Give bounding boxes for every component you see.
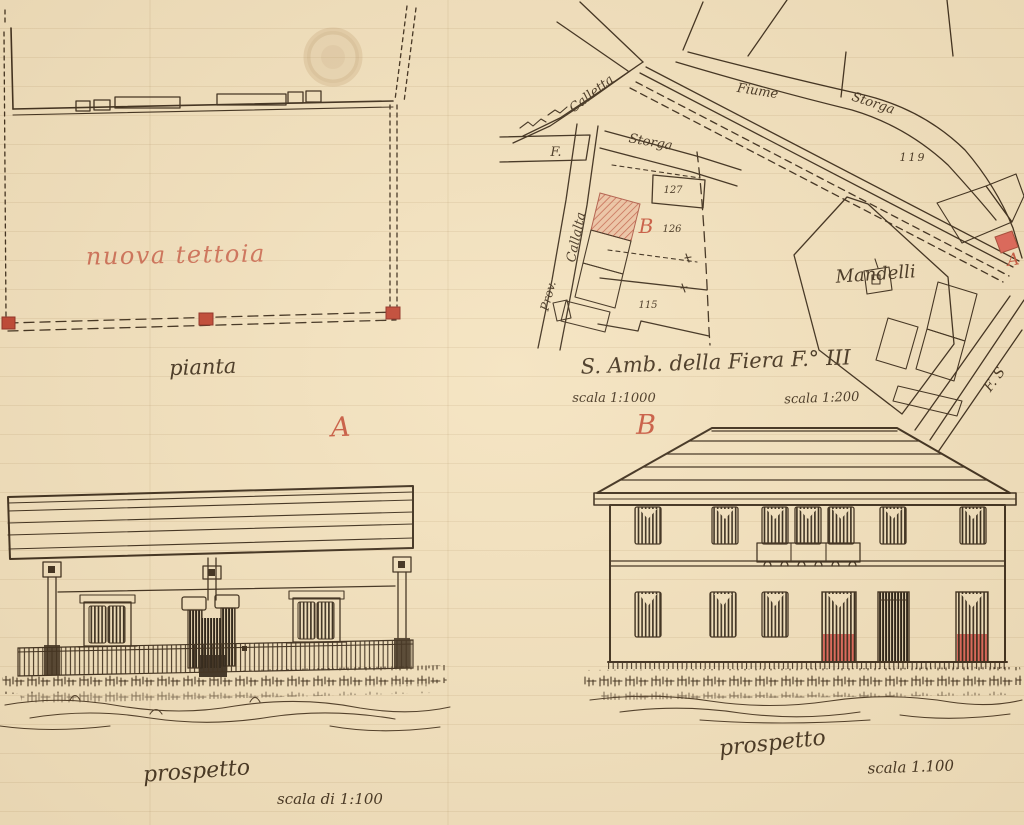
elevation-a-scale: scala di 1:100 (277, 790, 383, 808)
road-label-fiume: Fiume (735, 81, 780, 103)
window (960, 507, 986, 544)
plan-new-canopy-label: nuova tettoia (86, 239, 266, 270)
balcony (757, 543, 860, 566)
plan-top-wall (13, 91, 393, 115)
cornice (594, 493, 1016, 505)
window (762, 507, 788, 544)
plan-caption: pianta (169, 354, 237, 380)
window (828, 507, 854, 544)
parcel-number-119: 119 (900, 151, 927, 164)
owner-label-mandelli: Mandelli (834, 261, 916, 288)
map-marker-a: A (1004, 249, 1021, 271)
label-f: F. (549, 145, 561, 160)
window (795, 507, 821, 544)
window (762, 592, 788, 637)
tramway-road (630, 67, 1019, 282)
window (635, 592, 661, 637)
river-storga (676, 52, 1022, 258)
road-label-calletta: Calletta (567, 72, 617, 116)
elevation-b-marker: B (635, 410, 656, 441)
road-junction (557, 0, 953, 71)
road-label-prov: Prov. (537, 280, 559, 314)
map-scale-200: scala 1:200 (784, 390, 860, 408)
paper-stain-core (321, 45, 345, 69)
window (880, 507, 906, 544)
elevation-a: A (0, 412, 450, 808)
parcel-number-115: 115 (638, 300, 657, 311)
road-label-callalta: Callalta (564, 211, 589, 264)
central-door (878, 592, 909, 662)
new-building-b-hatched (591, 193, 640, 241)
red-post-marker (2, 317, 15, 329)
label-f-s: F. S (980, 364, 1009, 395)
elevation-b-caption: prospetto (718, 726, 827, 762)
red-post-marker (386, 307, 400, 319)
lower-openings (635, 592, 988, 662)
site-map: Calletta Fiume Storga Storga F. Callalta… (500, 0, 1024, 452)
river-label-storga: Storga (850, 90, 897, 118)
parcel-mandelli (794, 197, 977, 416)
map-caption: S. Amb. della Fiera F.° III (580, 345, 852, 378)
drawing-canvas: nuova tettoia pianta (0, 0, 1024, 825)
upper-windows (635, 507, 986, 544)
window (710, 592, 736, 637)
elevation-a-marker: A (327, 412, 351, 444)
red-door-left (822, 592, 856, 662)
ground-b (583, 662, 1022, 723)
block-f (500, 135, 590, 162)
scanned-drawing-sheet: nuova tettoia pianta (0, 0, 1024, 825)
map-scale-1000: scala 1:1000 (572, 391, 655, 406)
red-door-right (956, 592, 988, 662)
plan-pianta: nuova tettoia pianta (2, 6, 416, 380)
road-label-storga: Storga (628, 131, 674, 153)
parcel-number-127: 127 (663, 185, 683, 196)
elevation-b: B (583, 410, 1022, 778)
window (635, 507, 661, 544)
elevation-a-caption: prospetto (142, 755, 251, 787)
red-post-marker (199, 313, 213, 325)
map-marker-b: B (638, 214, 654, 238)
window (712, 507, 738, 544)
elevation-b-scale: scala 1.100 (867, 756, 955, 777)
window-a2 (287, 591, 346, 643)
ground-a (0, 665, 450, 731)
parcel-number-126: 126 (662, 224, 682, 235)
canopy-roof-band (8, 486, 413, 559)
window-a1 (78, 595, 137, 647)
